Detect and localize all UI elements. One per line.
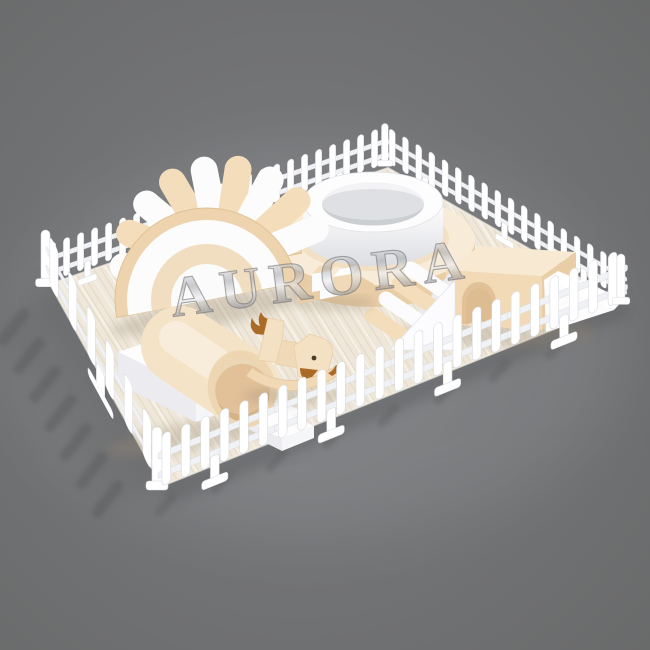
- tunnel-body-highlight: [176, 338, 214, 363]
- product-render-canvas: AURORA: [0, 0, 650, 650]
- horse-eye: [312, 356, 317, 361]
